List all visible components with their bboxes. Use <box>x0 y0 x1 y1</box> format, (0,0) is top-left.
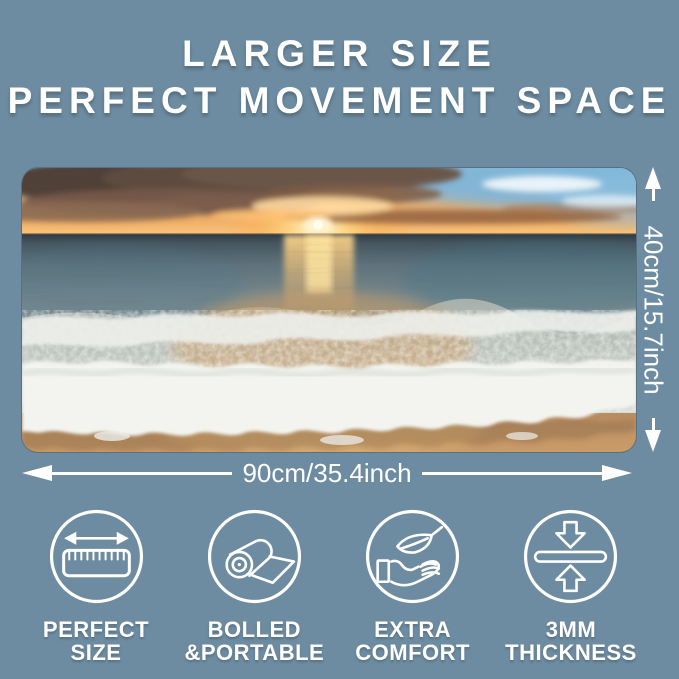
feature-rolled-portable: BOLLED &PORTABLE <box>176 508 332 664</box>
height-dimension: 40cm/15.7inch <box>638 167 668 452</box>
dimension-line <box>422 472 602 475</box>
title-line-2: PERFECT MOVEMENT SPACE <box>0 77 679 124</box>
arrow-down-icon <box>645 430 661 452</box>
arrow-left-icon <box>22 465 52 481</box>
dimension-line <box>52 472 232 475</box>
page-title: LARGER SIZE PERFECT MOVEMENT SPACE <box>0 30 679 124</box>
feature-extra-comfort: EXTRA COMFORT <box>335 508 491 664</box>
feature-label-line2: COMFORT <box>355 641 470 664</box>
infographic-stage: LARGER SIZE PERFECT MOVEMENT SPACE <box>0 0 679 679</box>
arrow-right-icon <box>602 465 632 481</box>
feature-perfect-size: PERFECT SIZE <box>18 508 174 664</box>
dimension-line <box>652 189 655 201</box>
feature-label: BOLLED &PORTABLE <box>184 618 324 664</box>
thickness-arrows-icon <box>522 508 619 605</box>
feature-label-line2: &PORTABLE <box>184 641 324 664</box>
mousepad-product-image <box>22 168 636 452</box>
feature-label-line1: BOLLED <box>184 618 324 641</box>
feature-label: EXTRA COMFORT <box>355 618 470 664</box>
feature-row: PERFECT SIZE BOLLED &PORTABLE <box>0 508 679 664</box>
feature-label-line1: 3MM <box>505 618 637 641</box>
hand-leaf-comfort-icon <box>364 508 461 605</box>
width-dimension-label: 90cm/35.4inch <box>242 458 411 489</box>
feature-label: 3MM THICKNESS <box>505 618 637 664</box>
width-dimension: 90cm/35.4inch <box>22 459 632 487</box>
ocean-sunset-scene <box>22 168 636 452</box>
ruler-width-icon <box>48 508 145 605</box>
height-dimension-label: 40cm/15.7inch <box>638 225 669 394</box>
feature-label-line2: SIZE <box>43 641 149 664</box>
feature-label-line1: EXTRA <box>355 618 470 641</box>
dimension-line <box>652 418 655 430</box>
feature-label-line2: THICKNESS <box>505 641 637 664</box>
feature-3mm-thickness: 3MM THICKNESS <box>493 508 649 664</box>
arrow-up-icon <box>645 167 661 189</box>
feature-label: PERFECT SIZE <box>43 618 149 664</box>
surf-foam <box>22 291 636 452</box>
rolled-mat-icon <box>206 508 303 605</box>
title-line-1: LARGER SIZE <box>0 30 679 77</box>
feature-label-line1: PERFECT <box>43 618 149 641</box>
